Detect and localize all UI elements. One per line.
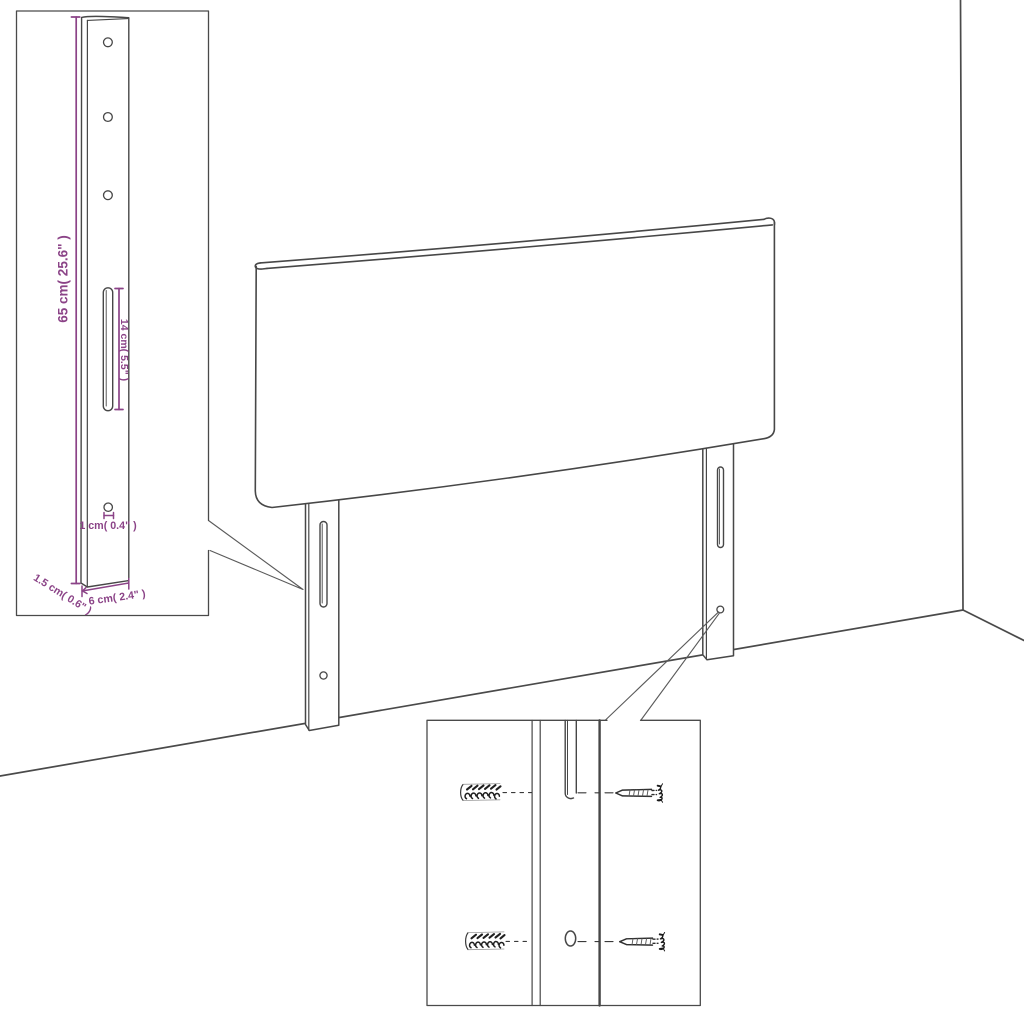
svg-text:65 cm( 25.6" ): 65 cm( 25.6" ) xyxy=(56,235,71,322)
svg-text:1 cm( 0.4" ): 1 cm( 0.4" ) xyxy=(79,520,137,532)
svg-text:14 cm( 5.5" ): 14 cm( 5.5" ) xyxy=(118,319,130,381)
